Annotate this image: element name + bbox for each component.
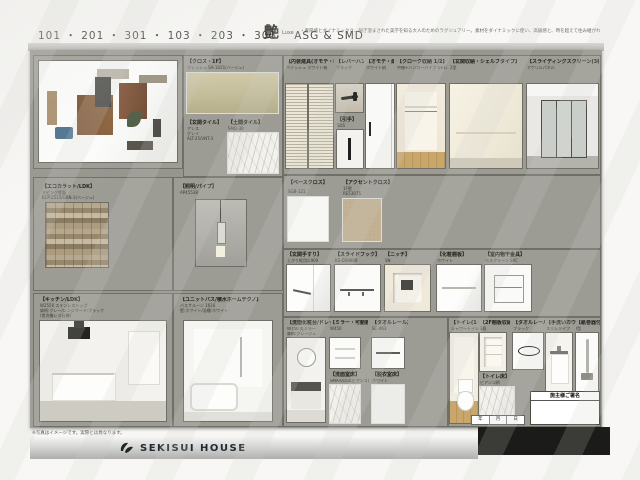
pendant-cord (220, 200, 221, 222)
toilet-floor-sub: ビアンコ柄 (480, 381, 500, 386)
louver-door-photo-1 (286, 84, 307, 168)
header-row: 101 ・ 201 ・ 301 ・ 103 ・ 203 ・ 303 ASG & … (38, 24, 608, 42)
shower-bar (240, 337, 242, 377)
light-panel: 【照明/パイプ】 AP45538 (174, 178, 282, 290)
screen-panel-2 (556, 100, 572, 158)
laundry-hanger-photo (485, 265, 531, 311)
corner-line (313, 265, 314, 311)
fixture-sub-5: ホスクリーン SPC (485, 259, 518, 264)
washroom-panel: 【洗面化粧台/ドレッサA】 W750 丸ミラー 扉柄:グレージュ 【ミラー・可動… (284, 318, 447, 426)
style-romaji: Luxe (282, 30, 294, 36)
brand-name: SEKISUI HOUSE (140, 443, 247, 454)
fixtures-panel: 【玄関手すり】 上がり框用/L900 【スライドフック】 KS-DS9009 【… (284, 250, 600, 316)
louver-door-photo-2 (309, 84, 333, 168)
pendant-light-photo (196, 200, 246, 266)
ecocarat-photo (46, 203, 108, 267)
door-pull-photo (337, 130, 363, 168)
toilet-photo (450, 333, 478, 423)
signature-area (531, 401, 599, 423)
wash-floor-label: 【洗面室床】 (330, 372, 360, 378)
kitchen-floor (40, 401, 166, 421)
bathtub (190, 383, 238, 411)
door-edge-pull-shape (369, 122, 371, 136)
presentation-board: 【クロス・1F】 フレッシュ SA-1021(ベージュ) 【玄関タイル】 アレス… (30, 50, 602, 428)
entry-storage-photo (450, 84, 522, 168)
toilet-panel: 【トイレ(1・2F)】 シャワートイレ一体型 【2F棚板収納】 3段 【タオルレ… (449, 318, 600, 426)
cloak-hanger-pipe (405, 111, 437, 112)
cloak-wood-floor (397, 152, 445, 168)
mirror-shelf-sub: W450 (330, 327, 342, 332)
bath-panel: 【ユニットバス/積水ホームテクノ】 バスサルーン 1616 壁:ホワイト/浴槽:… (174, 294, 282, 426)
wash-floor-sub: SMA-0151(ビアンコ) (330, 379, 369, 384)
toilet-label: 【トイレ(1・2F)】 (451, 320, 479, 326)
cloak-back-wall (405, 92, 437, 150)
room-numbers: 101 ・ 201 ・ 301 ・ 103 ・ 203 ・ 303 (38, 30, 277, 42)
date-cell-day: 日 (507, 416, 524, 424)
tablet-sample (95, 77, 111, 107)
lever-sub: ブラック (336, 66, 352, 71)
cloak-storage-photo (397, 84, 445, 168)
flush-door-sub: ホワイト柄 (366, 66, 386, 71)
vanity-line2: 扉柄:グレージュ (287, 332, 316, 337)
bath-photo (184, 321, 272, 421)
screen-sub: アクリルパネル (527, 66, 555, 71)
vanity-counter (291, 382, 321, 391)
tile2-swatch (228, 133, 278, 173)
pendant-body (217, 222, 226, 244)
shelf-board-photo (437, 265, 481, 311)
signature-box: 施主様ご署名 (531, 392, 599, 424)
sekisui-house-logo-icon (118, 441, 134, 455)
lever-rose-shape (353, 92, 357, 101)
date-cell-year: 年 (472, 416, 490, 424)
accent-cloth-swatch (343, 199, 381, 241)
tile2-code: SMD-30 (228, 127, 244, 132)
vanity-label: 【洗面化粧台/ドレッサA】 (287, 320, 331, 326)
wash-floor-swatch (330, 385, 360, 423)
range-hood-duct (74, 321, 84, 328)
entry-storage-sub: 2型 (450, 66, 457, 71)
hook-bar (340, 289, 374, 291)
bath-floor (184, 412, 272, 421)
dressing-floor-swatch (372, 385, 404, 423)
toilet-shelf-sub: 3段 (480, 327, 487, 332)
lever-handle-photo (336, 84, 363, 112)
cloak-sub: 中棚+ハンガーパイプ 1+1/2セット (397, 66, 447, 71)
hook-dot-1 (348, 292, 350, 296)
date-cell-month: 月 (490, 416, 508, 424)
leaf-decor (127, 111, 141, 127)
tile1-line3: ALT-25/VNT-3 (187, 137, 213, 142)
toilet-towel-ring-photo (513, 333, 543, 369)
intercom-monitor (401, 280, 413, 290)
entry-handrail-photo (287, 265, 330, 311)
cloth-tile-panel: 【クロス・1F】 フレッシュ SA-1021(ベージュ) 【玄関タイル】 アレス… (184, 56, 282, 176)
moodboard-panel (34, 56, 182, 168)
entry-storage-label: 【玄関収納・シェルフタイプ】 (450, 59, 520, 65)
niche-photo (385, 265, 430, 311)
cloak-label: 【クローク収納 1/2】 (397, 59, 447, 65)
style-description: ・重厚感とダイナミックさ、研ぎ澄まされた美学を知る大人のためのラグジュアリー。素… (300, 28, 600, 34)
hook-dot-2 (362, 292, 364, 296)
handrail-sub: I型 (576, 327, 581, 332)
towel-ring-shape (518, 346, 540, 356)
towel-rail-photo (372, 338, 404, 368)
vanity-line1: W750 丸ミラー (287, 327, 316, 332)
pull-sub: SUS (337, 124, 345, 129)
footer-logo-strip: SEKISUI HOUSE (30, 437, 478, 459)
cloths-panel: 【ベースクロス】 SGB-121 【アクセントクロス】 1F壁 RE53075 (284, 176, 600, 248)
kitchen-panel: 【キッチン/LDK】 W2550 ステンレストップ 扉柄:グレー/レンジフード:… (34, 294, 172, 426)
handwash-faucet (557, 346, 561, 351)
shelf-niche-line-2 (484, 354, 502, 355)
towel-rail-bar (376, 352, 400, 354)
wallpaper-swatch (187, 73, 278, 113)
handrail-vertical-bar (586, 339, 589, 373)
handwash-photo (546, 333, 572, 391)
handwash-cabinet (551, 354, 569, 384)
stone-sample (139, 75, 167, 83)
paper-holder (581, 373, 593, 380)
tray-sample (127, 141, 153, 150)
black-bar-sample (153, 119, 161, 137)
door-set-label: 【内装建具(オモテ・収納)】 (286, 59, 334, 65)
base-cloth-label: 【ベースクロス】 (288, 180, 328, 186)
footer-black-bar (478, 427, 610, 455)
flush-door-photo (366, 84, 394, 168)
kitchen-line3: (食洗機レス仕様) (40, 314, 71, 319)
bath-back-wall (194, 329, 262, 387)
sliding-screen-photo (527, 84, 598, 168)
accent-cloth-line2: RE53075 (343, 192, 361, 197)
fixture-sub-2: KS-DS9009 (335, 259, 357, 264)
shelf-line-2 (335, 357, 355, 359)
shelf-niche-recess (484, 337, 502, 367)
toilet-sub: シャワートイレ一体型 (451, 327, 479, 332)
kitchen-window (128, 331, 160, 385)
round-mirror (297, 348, 316, 367)
toilet-ring-sub: ブラック (513, 327, 529, 332)
blue-object (55, 127, 73, 139)
hanger-frame (494, 275, 524, 303)
wallpaper-code: フレッシュ SA-1021(ベージュ) (187, 66, 244, 71)
handwash-sub: スリムタイプ (546, 327, 570, 332)
base-cloth-code: SGB-121 (288, 190, 305, 195)
fixture-sub-3: SN (385, 259, 391, 264)
light-code: AP45538 (180, 191, 198, 196)
vanity-cabinet (291, 391, 321, 409)
base-cloth-swatch (288, 197, 328, 241)
door-set-sub: ベリッシュ ホワイト柄 (286, 66, 327, 71)
door-pull-shape (348, 138, 351, 160)
ecocarat-panel: 【エコカラット/LDK】 リビング壁面 ECP-2515/GRN-1(ベージュ) (34, 178, 172, 290)
entry-counter-line (456, 132, 516, 134)
bath-line2: 壁:ホワイト/浴槽:ホワイト (180, 309, 228, 314)
shelf-board-bar (442, 287, 476, 289)
cloak-shelf-line (405, 106, 437, 108)
washroom-floor (287, 410, 325, 422)
doors-panel: 【内装建具(オモテ・収納)】 ベリッシュ ホワイト柄 【レバーハンドル】 ブラッ… (284, 56, 600, 174)
image-note: ※写真はイメージです。実際とは異なります。 (32, 430, 125, 436)
hanger-pole (494, 287, 522, 288)
door-frame-line (391, 84, 392, 168)
moodboard-photo (39, 61, 177, 162)
spec-sheet-page: 101 ・ 201 ・ 301 ・ 103 ・ 203 ・ 303 ASG & … (0, 0, 640, 480)
handwash-label: 【手洗いカウンター】 (546, 320, 576, 326)
slide-hook-photo (335, 265, 380, 311)
kitchen-counter-line (52, 373, 114, 375)
fixture-sub-4: ホワイト (437, 259, 453, 264)
towel-rail-sub: SC-463 (372, 327, 386, 332)
toilet-shelf-photo (480, 333, 506, 371)
pendant-bulb (216, 246, 225, 257)
vanity-photo (287, 338, 325, 422)
screen-ceiling (527, 84, 598, 96)
screen-panel-3 (571, 100, 587, 158)
handrail-bar (293, 289, 311, 295)
toilet-handrail-photo (576, 333, 598, 391)
style-kanji: 艶 (264, 21, 279, 42)
dressing-floor-sub: ホワイト (372, 379, 388, 384)
kitchen-cabinet (52, 373, 116, 401)
shelf-line-1 (335, 348, 355, 350)
range-hood (68, 327, 90, 339)
toilet-bowl (457, 391, 474, 411)
wood-sample-left (47, 91, 57, 125)
fixture-sub-1: 上がり框用/L900 (287, 259, 318, 264)
kitchen-photo (40, 321, 166, 421)
entry-floor (450, 158, 522, 168)
ecocarat-line2: ECP-2515/GRN-1(ベージュ) (42, 196, 94, 201)
signature-title: 施主様ご署名 (531, 392, 599, 401)
date-row: 年 月 日 (472, 416, 524, 424)
shelf-niche-line-1 (484, 345, 502, 346)
mirror-shelf-photo (330, 338, 360, 368)
screen-panel-1 (541, 100, 557, 158)
flush-door-label: 【オモテ・建具】 (366, 59, 394, 65)
